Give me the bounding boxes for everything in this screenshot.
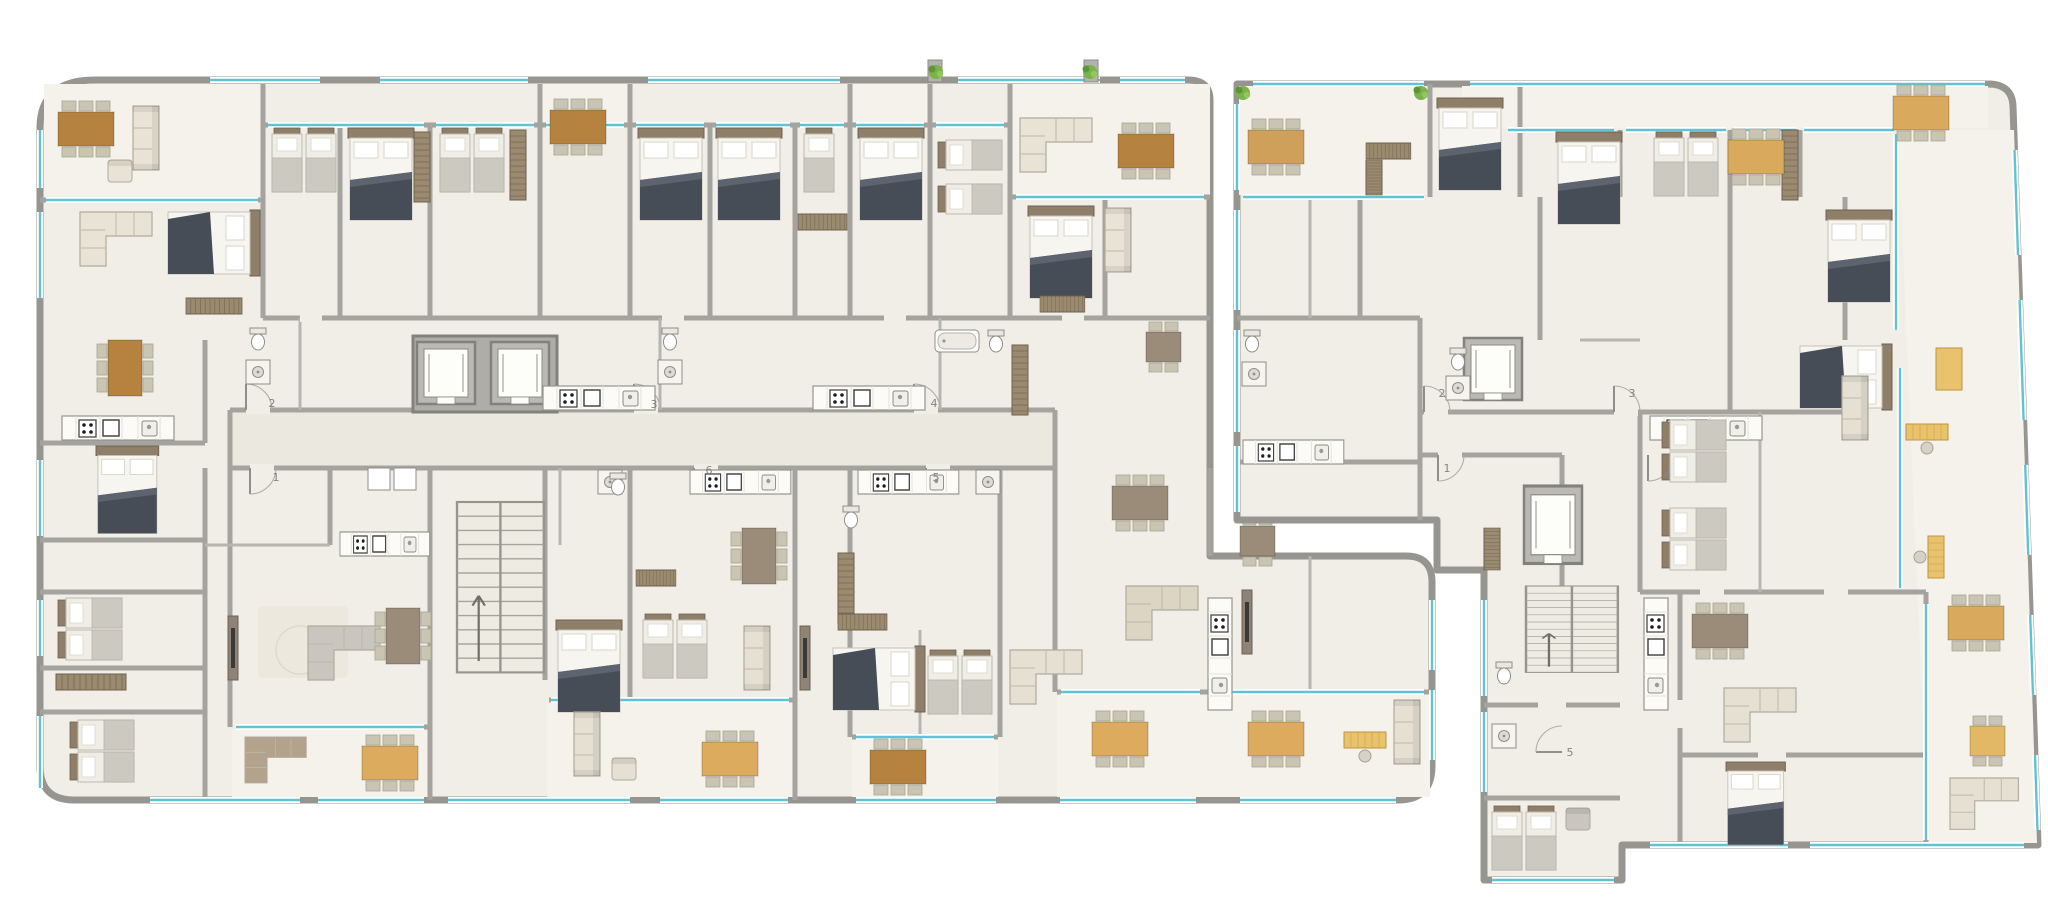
single-bed — [440, 128, 470, 192]
utility-closet — [394, 468, 416, 490]
kitchen-counter — [1243, 440, 1344, 464]
kitchen-counter — [543, 386, 655, 410]
shower — [658, 360, 682, 384]
double-bed — [168, 210, 260, 276]
outdoor-table — [362, 735, 418, 791]
toilet — [662, 328, 678, 350]
utility-closet — [368, 468, 390, 490]
shower — [1446, 376, 1470, 400]
outdoor-table — [1728, 129, 1784, 185]
double-bed — [638, 128, 704, 220]
single-bed — [1662, 508, 1726, 538]
outdoor-table — [1092, 711, 1148, 767]
outdoor-table — [702, 731, 758, 787]
double-bed — [1826, 210, 1892, 302]
elevator-core — [413, 336, 557, 412]
wardrobe — [1040, 296, 1085, 312]
wardrobe — [838, 614, 887, 630]
sofa — [744, 626, 770, 690]
floorplan-canvas: 1 2 3 4 5 6 — [0, 0, 2048, 900]
unit-label: 4 — [1664, 468, 1671, 481]
wardrobe — [798, 214, 847, 230]
unit-label: 5 — [1567, 746, 1574, 759]
kitchen-counter — [340, 532, 430, 556]
single-bed — [962, 650, 992, 714]
kitchen-counter — [813, 386, 925, 410]
double-bed — [1028, 206, 1094, 298]
unit-label: 4 — [931, 397, 938, 410]
single-bed — [70, 752, 134, 782]
wardrobe — [510, 130, 526, 200]
dining-table — [1112, 475, 1168, 531]
wardrobe — [1012, 345, 1028, 415]
single-bed — [1662, 540, 1726, 570]
single-bed — [1688, 132, 1718, 196]
shower — [1492, 724, 1516, 748]
sofa — [1842, 376, 1868, 440]
sofa — [1105, 208, 1131, 272]
wardrobe — [636, 570, 676, 586]
outdoor-table — [1248, 119, 1304, 175]
wardrobe — [1366, 160, 1382, 195]
unit-label: 1 — [273, 471, 280, 484]
kitchen-counter — [1208, 598, 1232, 710]
unit-label: 3 — [1629, 387, 1636, 400]
dining-table — [1692, 603, 1748, 659]
double-bed — [96, 446, 159, 533]
single-bed — [306, 128, 336, 192]
outdoor-table — [1248, 711, 1304, 767]
shower — [246, 360, 270, 384]
unit-label: 6 — [706, 464, 713, 477]
armchair — [1566, 808, 1590, 830]
dining-table — [375, 608, 431, 664]
shower — [1242, 362, 1266, 386]
tv-cabinet — [800, 626, 810, 690]
outdoor-table — [1948, 595, 2004, 651]
double-bed — [1556, 132, 1622, 224]
dining-table — [550, 99, 606, 155]
armchair — [612, 758, 636, 780]
tv-cabinet — [228, 616, 238, 680]
toilet — [1244, 330, 1260, 352]
staircase — [1526, 586, 1618, 672]
dining-table — [58, 101, 114, 157]
sofa — [133, 106, 159, 170]
elevator — [1524, 486, 1582, 564]
outdoor-table — [870, 739, 926, 795]
kitchen-counter — [858, 470, 959, 494]
single-bed — [1662, 420, 1726, 450]
dining-table — [1118, 123, 1174, 179]
unit-label: 5 — [933, 471, 940, 484]
left-building: 1 2 3 4 5 6 — [40, 60, 1432, 800]
toilet — [1496, 662, 1512, 684]
single-bed — [1662, 452, 1726, 482]
shower — [976, 470, 1000, 494]
single-bed — [1492, 806, 1522, 870]
double-bed — [1726, 762, 1785, 845]
corridor — [230, 410, 1055, 468]
double-bed — [1437, 98, 1503, 190]
double-bed — [348, 128, 414, 220]
unit-label: 2 — [1439, 387, 1446, 400]
toilet — [988, 330, 1004, 352]
floor-plan: 1 2 3 4 5 6 — [0, 0, 2048, 900]
dining-table — [97, 340, 153, 396]
tv-cabinet — [1242, 590, 1252, 654]
elevator — [491, 342, 549, 404]
double-bed — [833, 646, 925, 712]
toilet — [1450, 348, 1466, 370]
toilet — [843, 506, 859, 528]
single-bed — [928, 650, 958, 714]
outdoor-table — [1893, 85, 1949, 141]
kitchen-counter — [62, 416, 174, 440]
single-bed — [272, 128, 302, 192]
double-bed — [716, 128, 782, 220]
toilet — [250, 328, 266, 350]
bathtub — [935, 330, 979, 352]
wardrobe — [1366, 143, 1411, 159]
toilet — [610, 473, 626, 495]
staircase — [457, 502, 544, 672]
single-bed — [643, 614, 673, 678]
armchair — [108, 160, 132, 182]
elevator — [417, 342, 475, 404]
wardrobe — [186, 298, 242, 314]
single-bed — [1654, 132, 1684, 196]
outdoor-sofa — [574, 712, 600, 776]
kitchen-counter — [1644, 598, 1668, 710]
outdoor-sofa — [1394, 700, 1420, 764]
single-bed — [58, 598, 122, 628]
single-bed — [938, 140, 1002, 170]
single-bed — [938, 184, 1002, 214]
single-bed — [1526, 806, 1556, 870]
terrace — [850, 84, 930, 123]
unit-label: 1 — [1444, 462, 1451, 475]
double-bed — [858, 128, 924, 220]
single-bed — [677, 614, 707, 678]
desk — [1936, 348, 1962, 390]
wardrobe — [56, 674, 126, 690]
wardrobe — [1484, 528, 1500, 570]
unit-label: 3 — [651, 398, 658, 411]
unit-label: 2 — [269, 397, 276, 410]
wardrobe — [838, 553, 854, 623]
elevator — [1464, 338, 1522, 400]
double-bed — [556, 620, 622, 712]
single-bed — [474, 128, 504, 192]
wardrobe — [414, 132, 430, 202]
single-bed — [58, 630, 122, 660]
dining-table — [731, 528, 787, 584]
single-bed — [804, 128, 834, 192]
single-bed — [70, 720, 134, 750]
